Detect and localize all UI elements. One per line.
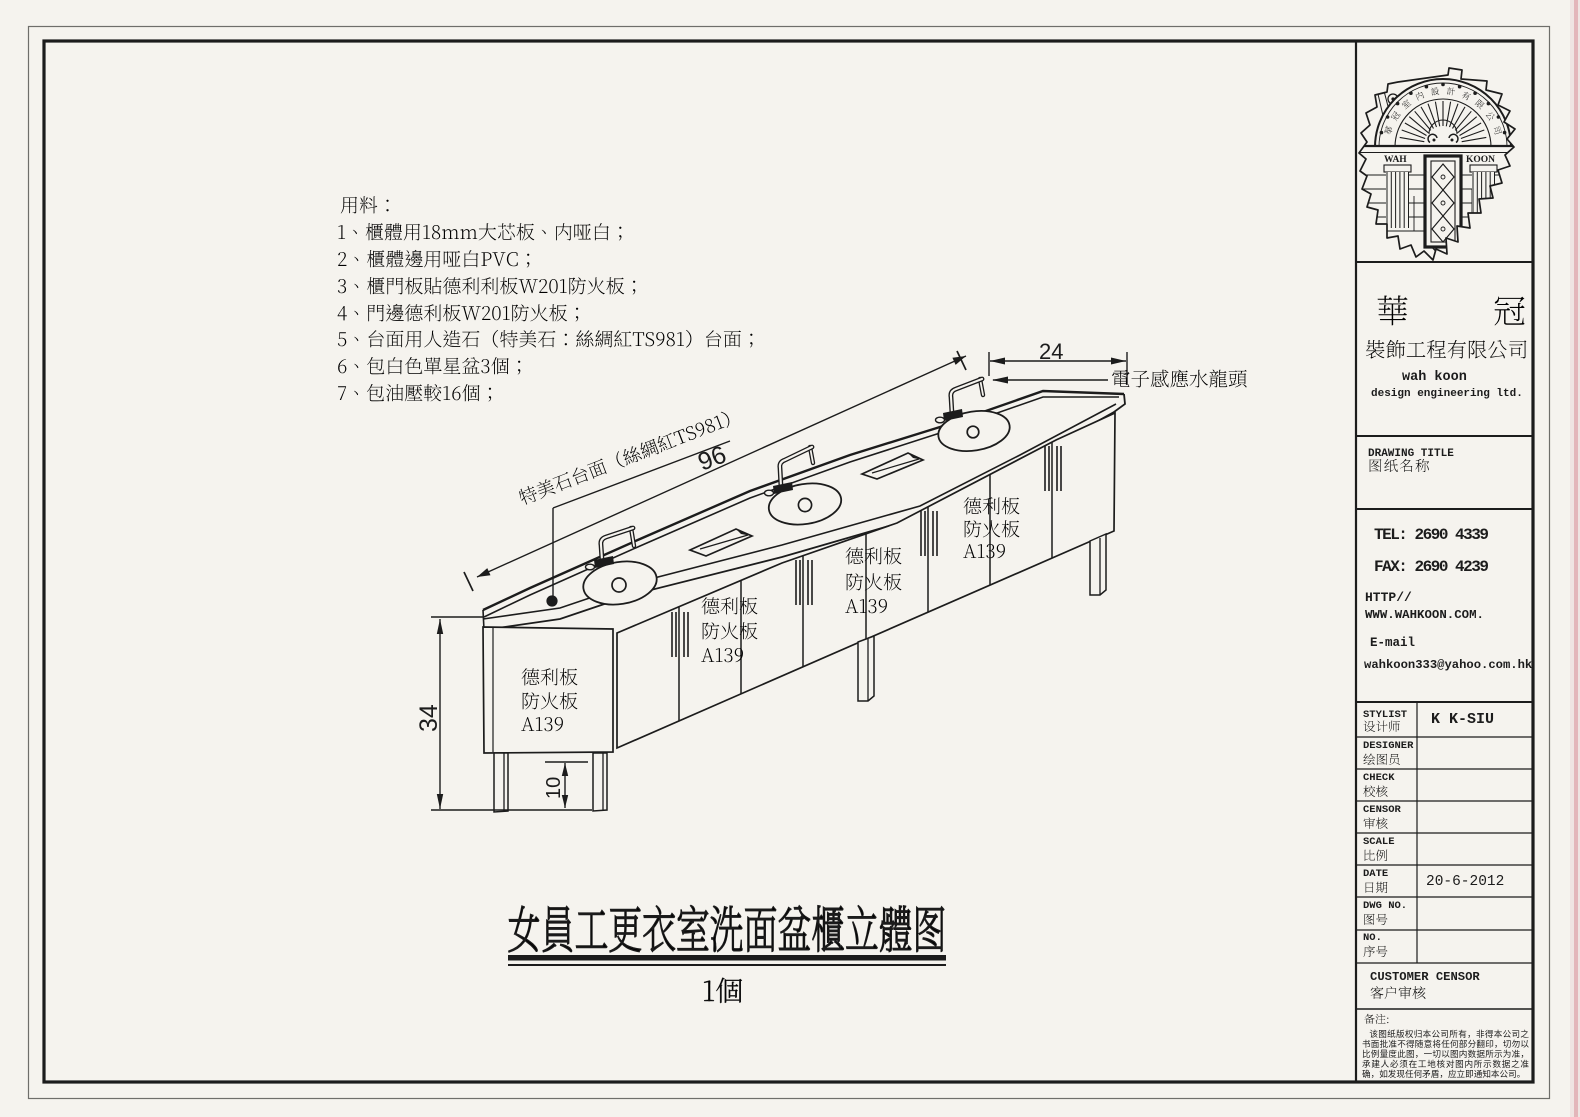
svg-text:KOON: KOON <box>1466 155 1495 165</box>
svg-text:wahkoon333@yahoo.com.hk: wahkoon333@yahoo.com.hk <box>1364 658 1532 672</box>
svg-text:STYLIST: STYLIST <box>1363 709 1407 721</box>
svg-text:34: 34 <box>415 704 443 732</box>
svg-text:96: 96 <box>694 440 730 476</box>
svg-text:20-6-2012: 20-6-2012 <box>1426 874 1504 890</box>
svg-text:DWG NO.: DWG NO. <box>1363 900 1407 912</box>
svg-text:FAX: 2690 4239: FAX: 2690 4239 <box>1374 558 1488 576</box>
svg-text:DESIGNER: DESIGNER <box>1363 740 1414 752</box>
svg-text:K K-SIU: K K-SIU <box>1431 711 1494 728</box>
svg-text:TEL: 2690 4339: TEL: 2690 4339 <box>1374 526 1488 544</box>
svg-text:SCALE: SCALE <box>1363 836 1395 848</box>
svg-text:wah koon: wah koon <box>1402 370 1467 385</box>
svg-text:WWW.WAHKOON.COM.: WWW.WAHKOON.COM. <box>1365 608 1484 622</box>
svg-text:10: 10 <box>543 777 565 799</box>
svg-text:HTTP//: HTTP// <box>1365 590 1412 605</box>
svg-text:CHECK: CHECK <box>1363 772 1395 784</box>
svg-text:DATE: DATE <box>1363 868 1388 880</box>
svg-text:NO.: NO. <box>1363 932 1382 944</box>
svg-text:DRAWING TITLE: DRAWING TITLE <box>1368 448 1454 460</box>
svg-text:CUSTOMER CENSOR: CUSTOMER CENSOR <box>1370 970 1480 984</box>
svg-text:WAH: WAH <box>1384 155 1407 165</box>
svg-text:24: 24 <box>1039 339 1063 364</box>
svg-text:E-mail: E-mail <box>1370 636 1415 650</box>
svg-text:CENSOR: CENSOR <box>1363 804 1402 816</box>
svg-text:design engineering ltd.: design engineering ltd. <box>1371 388 1523 400</box>
